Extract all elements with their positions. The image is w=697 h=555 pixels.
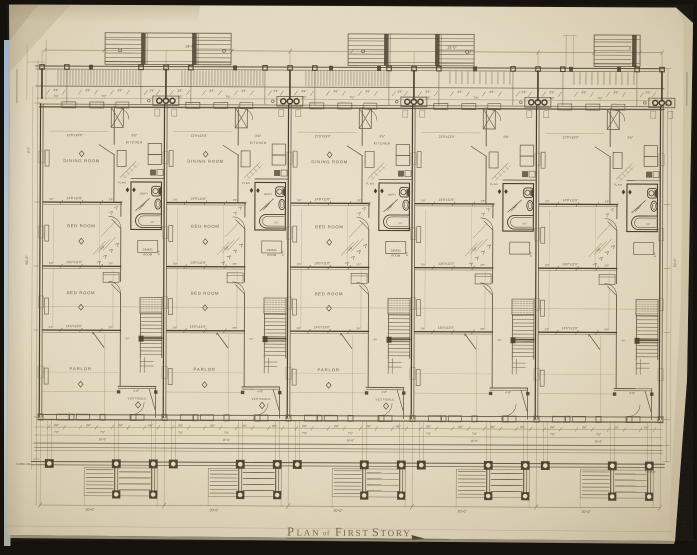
svg-text:KITCHEN: KITCHEN [250, 141, 267, 145]
svg-text:DINING: DINING [391, 249, 402, 253]
svg-text:4′-8″: 4′-8″ [381, 390, 387, 394]
svg-text:VESTIBULE: VESTIBULE [127, 396, 146, 400]
svg-text:20′-0″: 20′-0″ [210, 508, 220, 512]
svg-text:16′-6″: 16′-6″ [594, 439, 603, 443]
svg-text:PL.4x6: PL.4x6 [118, 180, 127, 184]
svg-text:8′-0″: 8′-0″ [529, 251, 533, 256]
svg-text:13′0″x11′0″: 13′0″x11′0″ [438, 262, 455, 266]
svg-text:5′6″: 5′6″ [173, 326, 178, 330]
svg-text:PARLOR: PARLOR [70, 366, 92, 371]
svg-text:IRST: IRST [343, 528, 370, 538]
svg-text:PARLOR: PARLOR [318, 367, 340, 372]
svg-text:BED ROOM: BED ROOM [315, 291, 343, 296]
svg-text:F: F [335, 525, 343, 539]
svg-text:5′6″: 5′6″ [49, 197, 54, 201]
svg-text:PL.4x6: PL.4x6 [366, 181, 375, 185]
svg-text:BED ROOM: BED ROOM [191, 224, 219, 229]
svg-text:5′6″: 5′6″ [173, 198, 178, 202]
svg-text:3′6″: 3′6″ [356, 326, 361, 330]
svg-text:3′6″: 3′6″ [125, 336, 129, 340]
svg-text:STABLE: STABLE [645, 470, 656, 474]
svg-text:3′6″: 3′6″ [497, 338, 501, 342]
svg-text:16′-6″: 16′-6″ [222, 438, 231, 442]
svg-text:TORY.: TORY. [380, 528, 414, 538]
svg-text:5′0″: 5′0″ [150, 220, 154, 224]
svg-text:ROOM: ROOM [267, 253, 277, 257]
svg-text:P: P [287, 525, 296, 539]
svg-text:DINING: DINING [267, 248, 278, 252]
svg-text:14′0″x13′0″: 14′0″x13′0″ [314, 325, 331, 329]
svg-text:8′6″: 8′6″ [503, 135, 509, 139]
svg-text:5′0″: 5′0″ [646, 222, 650, 226]
svg-text:5′0″: 5′0″ [297, 262, 302, 266]
svg-text:21′6″x13′0″: 21′6″x13′0″ [439, 135, 456, 139]
svg-text:3′6″: 3′6″ [621, 339, 625, 343]
svg-text:5′0″: 5′0″ [398, 221, 402, 225]
svg-text:S: S [372, 525, 380, 539]
svg-text:VESTIBULE: VESTIBULE [251, 397, 270, 401]
svg-text:13′0″x11′0″: 13′0″x11′0″ [562, 262, 579, 266]
svg-text:5′6″: 5′6″ [545, 199, 550, 203]
svg-text:3′0″: 3′0″ [232, 262, 237, 266]
svg-text:21′6″x13′0″: 21′6″x13′0″ [563, 135, 580, 139]
svg-text:5′0″: 5′0″ [421, 263, 426, 267]
svg-text:8′-0″: 8′-0″ [653, 252, 657, 257]
svg-text:5′6″: 5′6″ [297, 198, 302, 202]
svg-text:ROOM: ROOM [391, 254, 401, 258]
svg-text:DINING ROOM: DINING ROOM [187, 159, 224, 164]
svg-text:16′-6″: 16′-6″ [98, 437, 107, 441]
svg-text:3′0″: 3′0″ [480, 263, 485, 267]
svg-text:13′0″x11′0″: 13′0″x11′0″ [190, 261, 207, 265]
svg-text:3′6″: 3′6″ [108, 325, 113, 329]
svg-text:13′0″x11′0″: 13′0″x11′0″ [66, 260, 83, 264]
svg-text:8′-0″: 8′-0″ [157, 250, 161, 255]
svg-text:3′6″: 3′6″ [480, 327, 485, 331]
svg-text:14′0″x13′0″: 14′0″x13′0″ [66, 324, 83, 328]
svg-text:5′6″: 5′6″ [545, 327, 550, 331]
svg-text:5′0″: 5′0″ [49, 261, 54, 265]
svg-text:CURB LINE: CURB LINE [16, 462, 31, 466]
svg-text:5′0″: 5′0″ [274, 221, 278, 225]
svg-text:16′-6″: 16′-6″ [470, 439, 479, 443]
svg-text:24′-0″: 24′-0″ [448, 46, 458, 50]
svg-text:BATH: BATH [264, 192, 271, 196]
svg-text:BED ROOM: BED ROOM [191, 291, 219, 296]
svg-text:21′6″x13′0″: 21′6″x13′0″ [67, 133, 84, 137]
svg-text:5′6″: 5′6″ [49, 325, 54, 329]
svg-text:21′6″x13′0″: 21′6″x13′0″ [315, 134, 332, 138]
svg-text:5′6″: 5′6″ [421, 199, 426, 203]
svg-text:20′-0″: 20′-0″ [86, 508, 96, 512]
svg-text:8′6″: 8′6″ [131, 133, 137, 137]
svg-text:20′-0″: 20′-0″ [457, 509, 467, 513]
svg-text:14′6″x11′6″: 14′6″x11′6″ [314, 197, 331, 201]
svg-text:3′6″: 3′6″ [109, 197, 114, 201]
svg-text:13′0″x11′0″: 13′0″x11′0″ [314, 261, 331, 265]
svg-text:DINING ROOM: DINING ROOM [311, 159, 348, 164]
svg-text:PL.4x6: PL.4x6 [242, 181, 251, 185]
svg-text:5′0″: 5′0″ [522, 222, 526, 226]
svg-text:PL.4x6: PL.4x6 [490, 182, 499, 186]
svg-text:8′6″: 8′6″ [627, 136, 633, 140]
svg-text:16′-6″: 16′-6″ [346, 438, 355, 442]
svg-text:14′6″x11′6″: 14′6″x11′6″ [438, 198, 455, 202]
svg-text:ROOM: ROOM [143, 252, 153, 256]
svg-text:4′-8″: 4′-8″ [133, 389, 139, 393]
svg-text:3′6″: 3′6″ [232, 326, 237, 330]
svg-text:53′-0″: 53′-0″ [673, 258, 677, 267]
svg-text:5′0″: 5′0″ [173, 262, 178, 266]
svg-text:4′-8″: 4′-8″ [629, 391, 635, 395]
svg-text:8′6″: 8′6″ [379, 134, 385, 138]
svg-text:3′0″: 3′0″ [356, 262, 361, 266]
svg-text:KITCHEN: KITCHEN [126, 140, 143, 144]
svg-text:PARLOR: PARLOR [194, 367, 216, 372]
svg-text:VESTIBULE: VESTIBULE [375, 397, 394, 401]
svg-text:8′-0″: 8′-0″ [405, 251, 409, 256]
svg-text:21′6″x13′0″: 21′6″x13′0″ [191, 134, 208, 138]
svg-text:14′6″x11′6″: 14′6″x11′6″ [190, 197, 207, 201]
svg-text:KITCHEN: KITCHEN [374, 141, 391, 145]
svg-text:DINING: DINING [143, 247, 154, 251]
svg-text:14′0″x13′0″: 14′0″x13′0″ [562, 326, 579, 330]
svg-text:55′-0″: 55′-0″ [25, 255, 29, 265]
svg-text:BED ROOM: BED ROOM [315, 224, 343, 229]
svg-text:4′-8″: 4′-8″ [505, 391, 511, 395]
svg-text:3′6″: 3′6″ [481, 199, 486, 203]
svg-text:3′6″: 3′6″ [357, 198, 362, 202]
svg-text:14′0″x13′0″: 14′0″x13′0″ [438, 326, 455, 330]
svg-text:5′6″: 5′6″ [297, 326, 302, 330]
svg-text:3′6″: 3′6″ [604, 327, 609, 331]
svg-text:3′6″: 3′6″ [373, 337, 377, 341]
svg-text:PL.4x6: PL.4x6 [614, 183, 623, 187]
svg-text:DINING ROOM: DINING ROOM [63, 158, 100, 163]
svg-text:of: of [323, 529, 330, 537]
svg-text:3′0″: 3′0″ [108, 261, 113, 265]
svg-text:3′6″: 3′6″ [605, 199, 610, 203]
svg-text:3′6″: 3′6″ [233, 198, 238, 202]
svg-text:3′0″: 3′0″ [604, 263, 609, 267]
svg-text:20′-0″: 20′-0″ [334, 509, 344, 513]
svg-text:8′-0″: 8′-0″ [281, 250, 285, 255]
svg-text:BED ROOM: BED ROOM [67, 290, 95, 295]
svg-text:20′-0″: 20′-0″ [581, 510, 591, 514]
svg-text:BATH: BATH [388, 193, 395, 197]
svg-text:BED ROOM: BED ROOM [67, 223, 95, 228]
svg-text:4′-8″: 4′-8″ [257, 389, 263, 393]
svg-text:5′6″: 5′6″ [421, 327, 426, 331]
svg-text:8′6″: 8′6″ [255, 134, 261, 138]
svg-text:8′-0″: 8′-0″ [27, 146, 31, 153]
svg-text:5′0″: 5′0″ [545, 263, 550, 267]
svg-text:14′0″x13′0″: 14′0″x13′0″ [190, 325, 207, 329]
svg-text:8′: 8′ [629, 47, 632, 51]
svg-text:BATH: BATH [140, 191, 147, 195]
svg-text:LAN: LAN [296, 528, 320, 538]
svg-text:3′6″: 3′6″ [249, 337, 253, 341]
svg-text:14′6″x11′6″: 14′6″x11′6″ [562, 198, 579, 202]
svg-text:14′6″x11′6″: 14′6″x11′6″ [66, 196, 83, 200]
